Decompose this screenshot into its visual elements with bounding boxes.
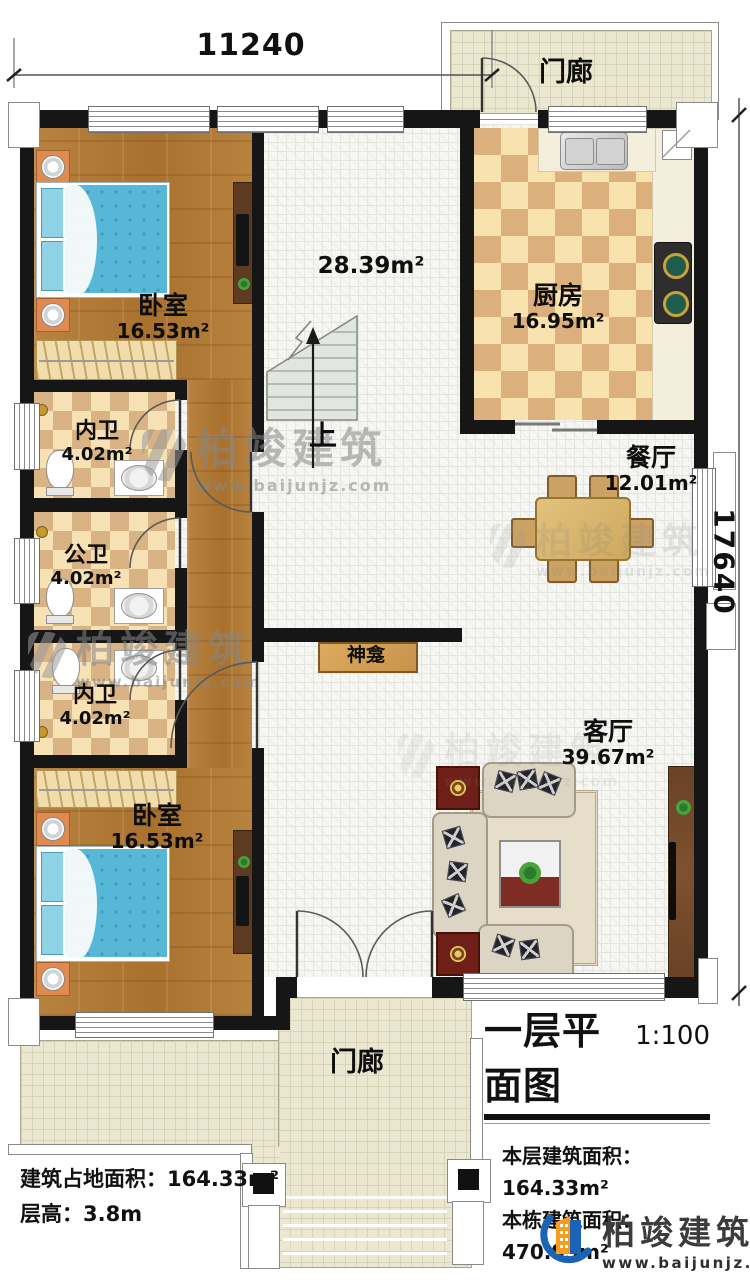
nightstand (36, 150, 70, 184)
window (14, 538, 40, 604)
room-area: 4.02m² (50, 569, 121, 589)
dining-chair (511, 518, 537, 548)
window (14, 403, 40, 470)
porch-column-pedestal-right (452, 1201, 484, 1265)
room-area: 4.02m² (59, 709, 130, 729)
room-label-bath-inner-2: 内卫 4.02m² (59, 684, 130, 729)
plant (238, 856, 250, 868)
kitchen-sink (560, 132, 628, 170)
room-label-bedroom-top: 卧室 16.53m² (117, 292, 210, 342)
cushion (516, 768, 538, 790)
cushion (447, 861, 468, 882)
room-label-bath-public: 公卫 4.02m² (50, 544, 121, 589)
wall-segment (34, 380, 187, 392)
side-table (436, 766, 480, 810)
storey-height-value: 3.8m (83, 1202, 142, 1226)
storey-height-label: 层高： (20, 1202, 83, 1226)
wall-segment (20, 630, 187, 643)
window (327, 106, 404, 133)
corner-pier (676, 102, 718, 148)
window (217, 106, 319, 133)
room-area: 39.67m² (562, 746, 655, 768)
plant (676, 800, 691, 815)
page-title: 一层平面图 (484, 1000, 631, 1110)
room-name: 公卫 (50, 544, 121, 569)
room-name: 门廊 (330, 1048, 384, 1078)
dining-table (535, 497, 631, 561)
floor-area-row: 本层建筑面积：164.33m² (502, 1140, 710, 1204)
wall-segment (175, 568, 187, 650)
room-label-bedroom-bottom: 卧室 16.53m² (111, 802, 204, 852)
porch-steps (283, 1185, 447, 1263)
nightstand (36, 298, 70, 332)
monitor (236, 876, 249, 926)
coffee-table (499, 840, 561, 908)
bathroom-sink (114, 588, 164, 624)
brand-logo-icon (534, 1208, 592, 1270)
room-label-living: 客厅 39.67m² (562, 718, 655, 768)
sink-basin (596, 138, 625, 165)
wall-segment (460, 420, 515, 434)
dimension-right-label: 17640 (708, 508, 741, 615)
wall-segment (20, 755, 187, 768)
window (548, 106, 647, 133)
bathroom-sink (114, 460, 164, 496)
title-underline-thin (484, 1123, 710, 1124)
wall-segment (252, 628, 462, 642)
site-area-value: 164.33m² (167, 1167, 279, 1191)
toilet (52, 648, 80, 688)
room-label-dining: 餐厅 12.01m² (605, 444, 698, 494)
room-label-porch-top: 门廊 (539, 58, 593, 88)
wall-segment (20, 498, 187, 512)
room-name: 门廊 (539, 58, 593, 88)
floor-area-value: 164.33m² (502, 1176, 609, 1200)
wall-segment (252, 124, 264, 452)
window (75, 1012, 214, 1038)
room-name: 内卫 (61, 420, 132, 445)
shrine-label: 神龛 (347, 645, 385, 666)
wall-segment (212, 1016, 290, 1030)
bed (36, 182, 170, 298)
bed (36, 846, 170, 962)
up-text: 上 (309, 420, 337, 451)
side-table (436, 932, 480, 976)
floor-plan: 柏竣建筑 www.baijunjz.com 柏竣建筑 www.baijunjz.… (0, 0, 750, 1283)
room-name: 餐厅 (605, 444, 698, 472)
room-name: 厨房 (512, 282, 605, 310)
wall-segment (252, 748, 264, 1016)
room-label-kitchen: 厨房 16.95m² (512, 282, 605, 332)
corner-pier (698, 958, 718, 1004)
wardrobe (36, 340, 177, 380)
brand-website: www.baijunjz.com (602, 1254, 750, 1272)
storey-height-row: 层高：3.8m (20, 1197, 279, 1232)
window (14, 670, 40, 742)
room-label-bath-inner-1: 内卫 4.02m² (61, 420, 132, 465)
tv (669, 842, 676, 920)
shrine-name: 神龛 (347, 645, 385, 666)
sink-basin (565, 138, 594, 165)
drawing-scale: 1:100 (635, 1021, 710, 1051)
burner (663, 291, 689, 317)
wall-segment (175, 392, 187, 400)
brand-block: 柏竣建筑 www.baijunjz.com (534, 1206, 750, 1272)
wall-segment (460, 124, 474, 434)
nightstand (36, 962, 70, 996)
site-area-label: 建筑占地面积： (20, 1167, 167, 1191)
dimension-top-label: 11240 (196, 28, 305, 63)
corner-pier (8, 998, 40, 1046)
room-label-porch-bottom: 门廊 (330, 1048, 384, 1078)
shower-head (36, 526, 48, 538)
room-name: 客厅 (562, 718, 655, 746)
room-name: 卧室 (111, 802, 204, 830)
monitor (236, 214, 249, 266)
stove (654, 242, 692, 324)
stairs-up-label: 上 (309, 420, 337, 451)
dining-chair (628, 518, 654, 548)
porch-right-edge (470, 1038, 483, 1162)
wall-segment (432, 977, 463, 998)
room-area: 16.95m² (512, 310, 605, 332)
patio-edge-horizontal (8, 1144, 252, 1155)
patio-left-floor (20, 1040, 285, 1150)
site-info: 建筑占地面积：164.33m² 层高：3.8m (20, 1162, 279, 1231)
brand-name: 柏竣建筑 (602, 1206, 750, 1254)
plant (238, 278, 250, 290)
room-area: 28.39m² (318, 254, 425, 280)
porch-column-right (458, 1169, 479, 1190)
room-area: 12.01m² (605, 472, 698, 494)
table-plant (519, 862, 541, 884)
burner (663, 253, 689, 279)
window (88, 106, 210, 133)
wall-segment (538, 110, 548, 128)
room-name: 内卫 (59, 684, 130, 709)
cushion (519, 939, 540, 960)
wall-segment (597, 420, 694, 434)
floor-area-label: 本层建筑面积： (502, 1144, 642, 1168)
room-area: 4.02m² (61, 445, 132, 465)
room-area: 16.53m² (111, 830, 204, 852)
nightstand (36, 812, 70, 846)
site-area-row: 建筑占地面积：164.33m² (20, 1162, 279, 1197)
window (463, 973, 665, 1001)
title-underline (484, 1114, 710, 1120)
corner-pier (8, 102, 40, 148)
wall-segment (175, 700, 187, 768)
wall-segment (175, 450, 187, 518)
room-area: 16.53m² (117, 320, 210, 342)
bathroom-sink (114, 650, 164, 686)
hallway-area-label: 28.39m² (318, 254, 425, 280)
room-name: 卧室 (117, 292, 210, 320)
